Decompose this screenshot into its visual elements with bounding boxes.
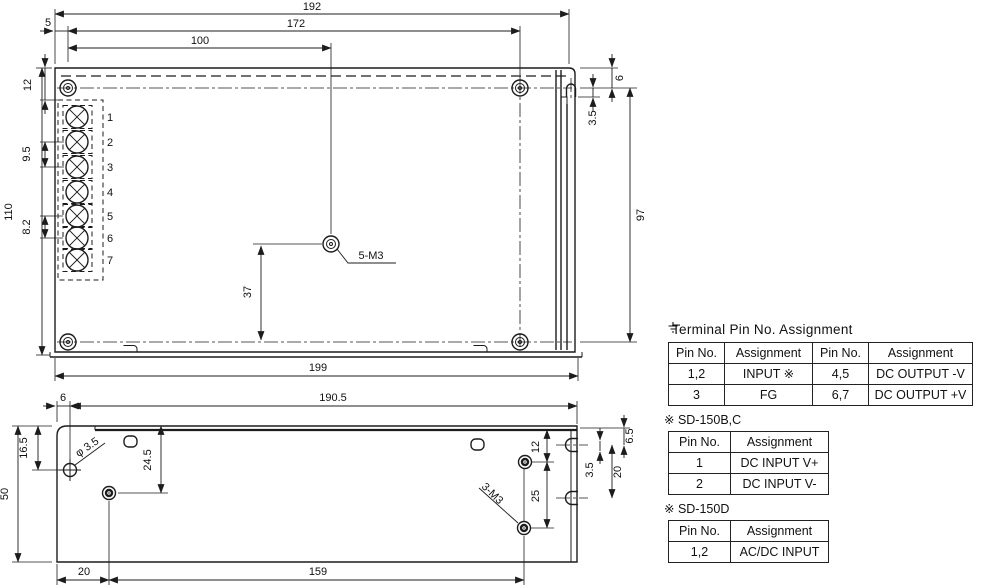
top-view-drawing: 1 2 3 4 5 6 7 192 172 5 100 110 [3, 1, 647, 381]
col-assignment: Assignment [725, 343, 813, 364]
terminal-block: 1 2 3 4 5 6 7 [58, 100, 113, 280]
terminal-number: 1 [107, 112, 113, 124]
dim-center-hole-x: 100 [191, 35, 209, 47]
table-row: 1,2 INPUT ※ 4,5 DC OUTPUT -V [669, 364, 973, 385]
side-view-drawing: φ 3.5 6 190.5 16.5 50 24.5 20 159 [0, 392, 636, 585]
vent-slot-icon [124, 436, 137, 447]
pin-table-title: Terminal Pin No. Assignment [664, 322, 982, 337]
mounting-screw-icon [60, 80, 528, 350]
dim-notch-offset: 6.5 [624, 428, 636, 443]
dim-pitch-a: 9.5 [21, 146, 33, 161]
model-note-bc: ※ SD-150B,C [664, 412, 982, 427]
terminal-5-icon [63, 205, 92, 228]
dim-edge-offset: 5 [45, 17, 51, 29]
terminal-6-icon [63, 227, 92, 250]
dim-screw-span: 159 [309, 566, 327, 578]
table-row: 2 DC INPUT V- [669, 474, 829, 495]
col-pin-no: Pin No. [813, 343, 869, 364]
dim-pitch-b: 8.2 [21, 219, 33, 234]
col-pin-no: Pin No. [669, 432, 731, 453]
model-d-table: Pin No. Assignment 1,2 AC/DC INPUT [668, 520, 829, 563]
dim-notch-width: 3.5 [584, 462, 596, 477]
dim-screw-top: 24.5 [142, 449, 154, 470]
dim-side-span: 97 [635, 209, 647, 221]
screw-spec-label: 3-M3 [479, 481, 505, 507]
table-row: 1 DC INPUT V+ [669, 453, 829, 474]
model-bc-table: Pin No. Assignment 1 DC INPUT V+ 2 DC IN… [668, 431, 829, 495]
terminal-3-icon [63, 156, 92, 179]
vent-slot-icon [471, 439, 484, 450]
dim-overall-height: 110 [3, 203, 15, 221]
col-pin-no: Pin No. [669, 343, 725, 364]
dim-notch-pitch: 20 [612, 466, 624, 478]
dim-hole-span: 172 [287, 18, 305, 30]
pin-assignment-panel: Terminal Pin No. Assignment Pin No. Assi… [664, 322, 982, 563]
terminal-7-icon [63, 249, 92, 272]
table-row: 1,2 AC/DC INPUT [669, 542, 829, 563]
dim-foot-offset: 20 [78, 566, 90, 578]
terminal-number: 2 [107, 137, 113, 149]
dim-slot-width: 3.5 [587, 110, 599, 125]
table-header-row: Pin No. Assignment Pin No. Assignment [669, 343, 973, 364]
dim-hole-span: 190.5 [319, 392, 347, 404]
terminal-number: 3 [107, 162, 113, 174]
dim-center-drop: 37 [242, 286, 254, 298]
model-note-d: ※ SD-150D [664, 501, 982, 516]
terminal-2-icon [63, 131, 92, 154]
dim-top-offset: 12 [22, 79, 34, 91]
dim-base-length: 199 [309, 362, 327, 374]
technical-drawing-page: 1 2 3 4 5 6 7 192 172 5 100 110 [0, 0, 985, 588]
dim-slot-offset: 6 [614, 75, 626, 81]
screw-spec-label: 5-M3 [358, 250, 383, 262]
terminal-1-icon [63, 106, 92, 129]
col-pin-no: Pin No. [669, 521, 731, 542]
dim-edge-offset: 6 [60, 392, 66, 404]
dim-screw-offset-top: 12 [530, 441, 542, 453]
col-assignment: Assignment [869, 343, 973, 364]
table-header-row: Pin No. Assignment [669, 432, 829, 453]
terminal-number: 5 [107, 211, 113, 223]
dim-height: 50 [0, 488, 11, 500]
pilot-hole-icon [59, 459, 81, 481]
dim-hole-top: 16.5 [18, 437, 30, 458]
terminal-number: 4 [107, 187, 113, 199]
col-assignment: Assignment [731, 432, 829, 453]
dim-screw-pitch: 25 [530, 490, 542, 502]
table-row: 3 FG 6,7 DC OUTPUT +V [669, 385, 973, 406]
dim-overall-width: 192 [303, 1, 321, 13]
table-header-row: Pin No. Assignment [669, 521, 829, 542]
terminal-4-icon [63, 181, 92, 204]
terminal-number: 6 [107, 233, 113, 245]
col-assignment: Assignment [731, 521, 829, 542]
pin-assignment-table: Pin No. Assignment Pin No. Assignment 1,… [668, 342, 973, 406]
case-screw-icon [103, 456, 532, 535]
terminal-number: 7 [107, 255, 113, 267]
